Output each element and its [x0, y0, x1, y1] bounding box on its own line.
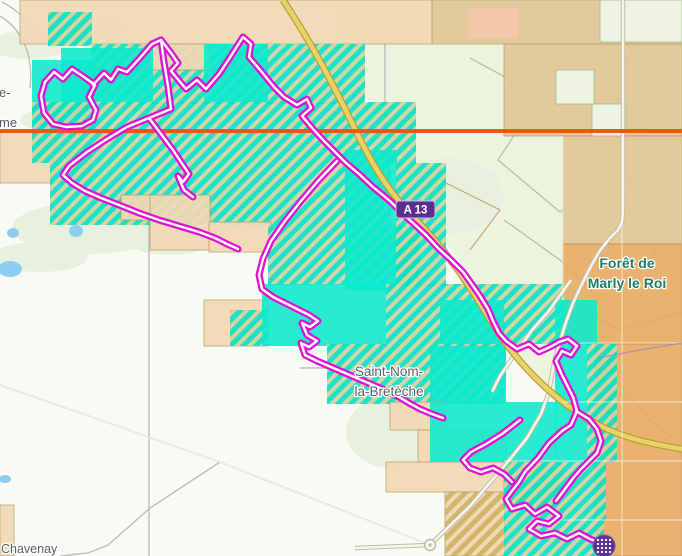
place-label-town-name: Saint-Nom- [355, 364, 423, 379]
dot-grid-icon [601, 547, 603, 549]
dot-grid-icon [597, 543, 599, 545]
pond [7, 228, 19, 238]
dot-grid-icon [605, 547, 607, 549]
orange-boundary-line [0, 129, 682, 133]
map-svg[interactable]: Forêt deMarly le RoiSaint-Nom-la-Bretèch… [0, 0, 682, 556]
dot-grid-icon [605, 539, 607, 541]
dot-grid-icon [597, 547, 599, 549]
explorer-tile-h [50, 163, 391, 225]
explorer-tile-c [430, 402, 556, 462]
dot-grid-icon [601, 551, 603, 553]
dot-grid-icon [609, 551, 611, 553]
place-label-forest-name: Marly le Roi [588, 275, 667, 291]
explorer-tile-c [430, 346, 506, 404]
place-label-edge-left-partial-2: me [0, 115, 17, 130]
place-label-town-bottom-left: Chavenay [1, 542, 58, 556]
dot-grid-icon [605, 551, 607, 553]
dot-grid-icon [597, 539, 599, 541]
dot-grid-icon [609, 543, 611, 545]
pond [69, 225, 83, 237]
explorer-tile-s [468, 8, 518, 38]
dot-grid-icon [605, 543, 607, 545]
place-label-forest-name: Forêt de [599, 255, 654, 271]
dot-grid-icon [601, 539, 603, 541]
dot-grid-icon [601, 543, 603, 545]
route-end-marker-circle[interactable] [593, 535, 615, 556]
route-end-marker[interactable] [593, 535, 615, 556]
explorer-tile-g [600, 0, 682, 42]
map-canvas[interactable]: Forêt deMarly le RoiSaint-Nom-la-Bretèch… [0, 0, 682, 556]
place-label-town-name: la-Bretèche [354, 384, 423, 399]
dot-grid-icon [609, 539, 611, 541]
motorway-badge-text: A 13 [404, 205, 428, 217]
dot-grid-icon [597, 551, 599, 553]
explorer-tile-g [556, 70, 594, 104]
explorer-tile-h [48, 12, 92, 46]
place-label-edge-left-partial-1: e- [0, 85, 11, 100]
roundabout-center [428, 543, 431, 546]
dot-grid-icon [609, 547, 611, 549]
explorer-tile-c [262, 284, 386, 346]
orange-line [0, 129, 682, 133]
